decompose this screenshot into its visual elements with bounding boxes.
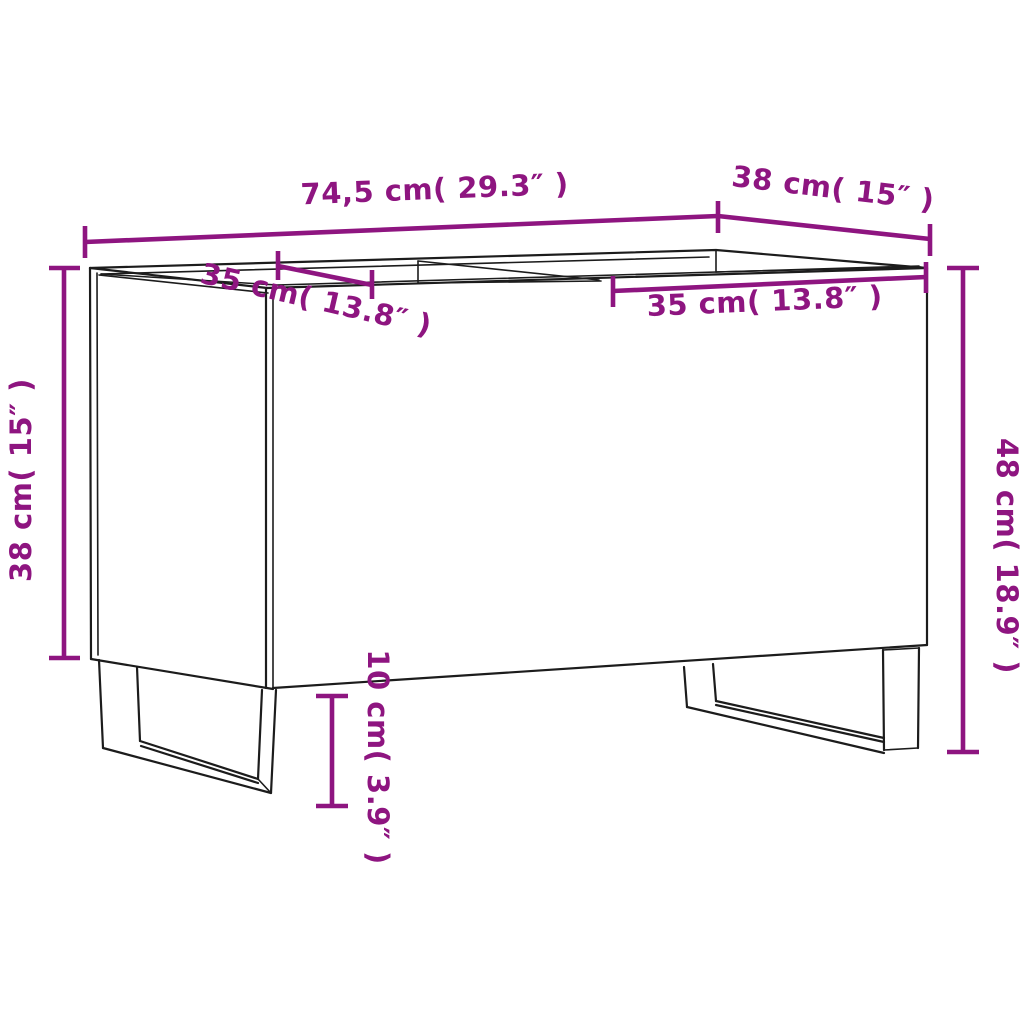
right-leg-back-post-outer bbox=[684, 667, 687, 707]
dim-label-leg-height: 10 cm( 3.9″ ) bbox=[361, 649, 395, 864]
dimension-height-right: 48 cm( 18.9″ ) bbox=[947, 268, 1024, 752]
left-leg-back-post-inner bbox=[137, 667, 140, 741]
dimension-overall-width: 74,5 cm( 29.3″ ) bbox=[85, 167, 718, 258]
dim-label-depth-top: 38 cm( 15″ ) bbox=[730, 159, 936, 217]
dimension-diagram: 74,5 cm( 29.3″ ) 38 cm( 15″ ) 35 cm( 13.… bbox=[0, 0, 1024, 1024]
side-panel-back-edge bbox=[90, 268, 91, 659]
dim-label-compartment-left: 35 cm( 13.8″ ) bbox=[197, 256, 435, 342]
side-panel-back-edge-inner bbox=[97, 273, 98, 655]
side-panel-bottom-edge bbox=[91, 659, 273, 689]
right-leg-front-post-outer bbox=[918, 648, 919, 748]
right-leg-back-post-inner bbox=[713, 664, 716, 701]
diagram-canvas: 74,5 cm( 29.3″ ) 38 cm( 15″ ) 35 cm( 13.… bbox=[0, 0, 1024, 1024]
left-leg-rail-top-double bbox=[141, 746, 258, 783]
divider-top-edge bbox=[418, 261, 599, 280]
dim-line-overall-width bbox=[85, 216, 718, 242]
left-leg-front-post-inner bbox=[258, 690, 262, 779]
right-leg bbox=[684, 648, 919, 753]
cabinet-drawing bbox=[90, 250, 927, 793]
right-leg-front-post-inner bbox=[883, 650, 884, 750]
right-leg-rail-bottom bbox=[687, 707, 884, 753]
left-leg bbox=[99, 660, 276, 793]
dimension-depth-top: 38 cm( 15″ ) bbox=[718, 159, 936, 256]
dim-label-height-left: 38 cm( 15″ ) bbox=[4, 378, 38, 582]
left-leg-rail-bottom bbox=[103, 748, 271, 793]
right-leg-rail-top-double bbox=[716, 705, 884, 742]
dim-label-height-right: 48 cm( 18.9″ ) bbox=[990, 438, 1024, 674]
left-leg-back-post-outer bbox=[99, 660, 103, 748]
dim-label-overall-width: 74,5 cm( 29.3″ ) bbox=[300, 167, 569, 212]
dimension-height-left: 38 cm( 15″ ) bbox=[4, 268, 80, 658]
right-leg-front-post-bottom bbox=[884, 748, 918, 750]
dim-line-depth-top bbox=[718, 216, 930, 239]
left-leg-front-post-outer bbox=[271, 690, 276, 793]
dimension-compartment-left: 35 cm( 13.8″ ) bbox=[197, 251, 435, 342]
divider-side-edge bbox=[418, 281, 601, 283]
